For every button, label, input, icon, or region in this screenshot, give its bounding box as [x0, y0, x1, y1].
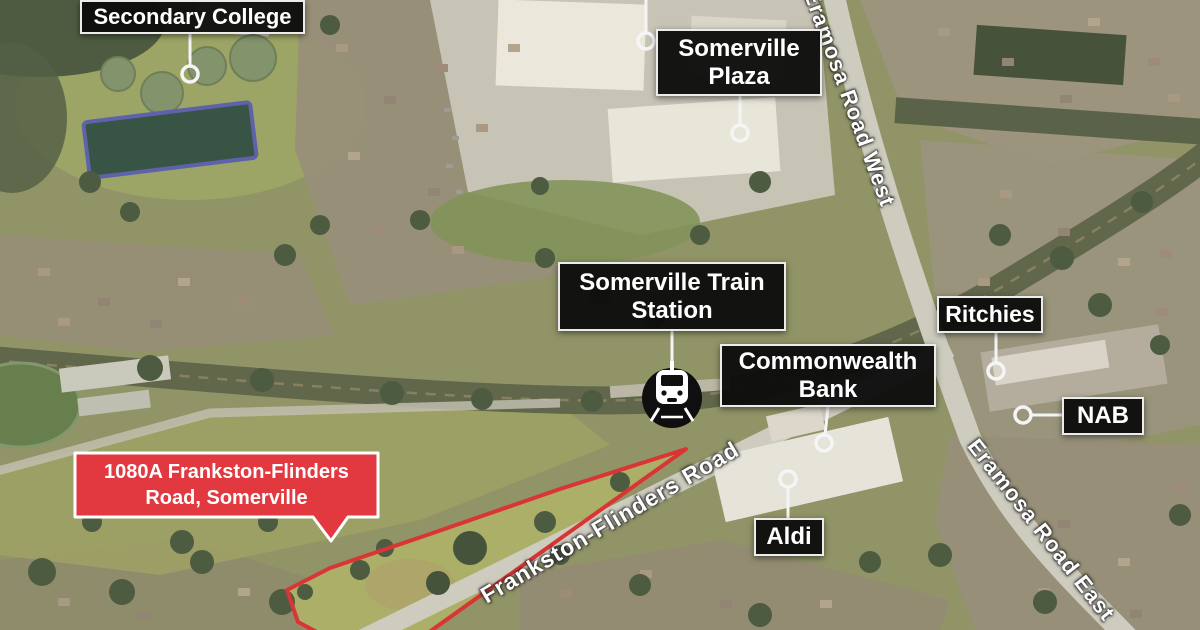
- train-station-marker: [642, 361, 702, 428]
- label-secondary-college: Secondary College: [80, 0, 305, 34]
- ritchies-text: Ritchies: [945, 301, 1034, 327]
- label-commonwealth-bank: Commonwealth Bank: [720, 344, 936, 407]
- callout-ring-ritchies: [988, 363, 1004, 379]
- label-ritchies: Ritchies: [937, 296, 1043, 333]
- callout-ring-nab: [1015, 407, 1031, 423]
- label-somerville-train-station: Somerville Train Station: [558, 262, 786, 331]
- callout-ring-somerville-plaza: [732, 125, 748, 141]
- callout-ring-secondary-college: [182, 66, 198, 82]
- label-somerville-plaza: Somerville Plaza: [656, 29, 822, 96]
- commonwealth-bank-text: Commonwealth Bank: [722, 348, 934, 403]
- nab-text: NAB: [1077, 402, 1129, 430]
- aldi-text: Aldi: [766, 523, 811, 551]
- somerville-plaza-text: Somerville Plaza: [658, 35, 820, 90]
- callout-line-commonwealth-bank: [825, 407, 828, 435]
- somerville-train-station-text: Somerville Train Station: [560, 269, 784, 324]
- callout-ring-offscreen-label: [638, 33, 654, 49]
- callout-ring-aldi: [780, 471, 796, 487]
- property-address-label: 1080A Frankston-Flinders Road, Somervill…: [78, 456, 375, 514]
- aerial-map: Secondary College Somerville Plaza Somer…: [0, 0, 1200, 630]
- callout-ring-commonwealth-bank: [816, 435, 832, 451]
- label-aldi: Aldi: [754, 518, 824, 556]
- secondary-college-text: Secondary College: [93, 4, 291, 29]
- label-nab: NAB: [1062, 397, 1144, 435]
